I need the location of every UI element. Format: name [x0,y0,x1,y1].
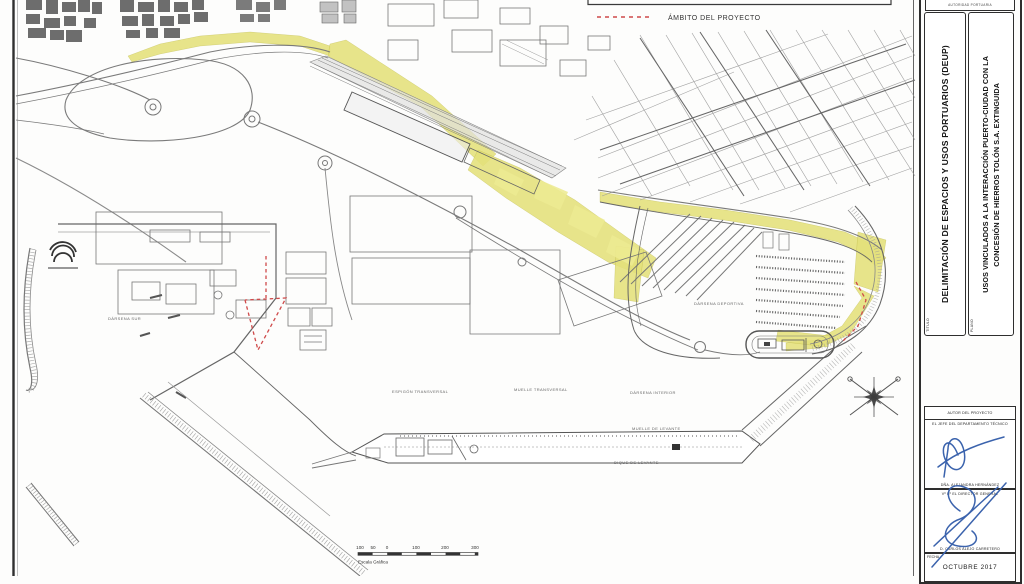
spur-pier [26,483,79,546]
port-plan-map: ÁMBITO DEL PROYECTO 100 50 0 100 200 300… [0,0,1024,576]
title-block-plano: PLANO USOS VINCULADOS A LA INTERACCIÓN P… [968,12,1014,336]
map-label: MUELLE TRANSVERSAL [514,387,568,392]
south-breakwater [140,382,368,576]
marina-north-piers [763,232,789,250]
scale-tick: 300 [471,545,479,550]
scale-tick: 50 [370,545,376,550]
plano-text-line1: USOS VINCULADOS A LA INTERACCIÓN PUERTO-… [980,56,991,293]
signature-box-2: Vº Bº EL DIRECTOR GENERAL D. CARLOS ALEJ… [924,489,1016,553]
city-blocks-topleft [26,0,356,42]
signature-1-role: EL JEFE DEL DEPARTAMENTO TÉCNICO [925,422,1015,426]
legend-ambito-label: ÁMBITO DEL PROYECTO [668,13,761,22]
city-blocks-topcentre [388,0,610,76]
map-label: MUELLE DE LEVANTE [632,426,681,431]
sheet-frame [14,0,914,576]
compass-rose-icon [848,377,900,417]
signature-2-name: D. CARLOS ALEJO CARRETERO [925,547,1015,551]
signature-1-name: DÑA. ALEJANDRA HERNÁNDEZ [925,483,1015,487]
scale-tick: 0 [386,545,389,550]
map-label: DIQUE DE LEVANTE [614,460,659,465]
titulo-text: DELIMITACIÓN DE ESPACIOS Y USOS PORTUARI… [940,45,950,303]
map-label: DÁRSENA SUR [108,316,141,321]
plano-text-line2: CONCESIÓN DE HIERROS TOLÓN S.A. EXTINGUI… [991,56,1002,293]
scale-tick: 200 [441,545,449,550]
date-value: OCTUBRE 2017 [925,564,1015,571]
author-header: AUTOR DEL PROYECTO [924,406,1016,420]
slipway-fan [48,242,78,268]
map-label: DÁRSENA DEPORTIVA [694,301,744,306]
date-box: FECHA OCTUBRE 2017 [924,553,1016,582]
signature-box-1: EL JEFE DEL DEPARTAMENTO TÉCNICO DÑA. AL… [924,419,1016,489]
marina-east-fingers [756,256,845,328]
signature-2-role: Vº Bº EL DIRECTOR GENERAL [925,492,1015,496]
city-grid-topright [574,30,915,212]
plan-sheet: ÁMBITO DEL PROYECTO 100 50 0 100 200 300… [0,0,1024,576]
scale-caption: Escala Gráfica [358,560,388,565]
title-block-top-note: AUTORIDAD PORTUARIA [925,0,1015,11]
east-pier [312,431,760,468]
scale-tick: 100 [356,545,364,550]
west-breakwater [24,248,38,390]
basin-marks [140,295,186,398]
scale-bar: 100 50 0 100 200 300 Escala Gráfica [356,545,479,565]
main-quay-outline [58,224,356,456]
map-label: DÁRSENA INTERIOR [630,390,676,395]
legend: ÁMBITO DEL PROYECTO [588,0,891,22]
date-tag: FECHA [927,555,939,559]
city-main-streets [600,30,915,196]
map-label: ESPIGÓN TRANSVERSAL [392,389,449,394]
title-block-titulo: TÍTULO DELIMITACIÓN DE ESPACIOS Y USOS P… [924,12,966,336]
scale-tick: 100 [412,545,420,550]
highlight-zones [128,32,886,351]
